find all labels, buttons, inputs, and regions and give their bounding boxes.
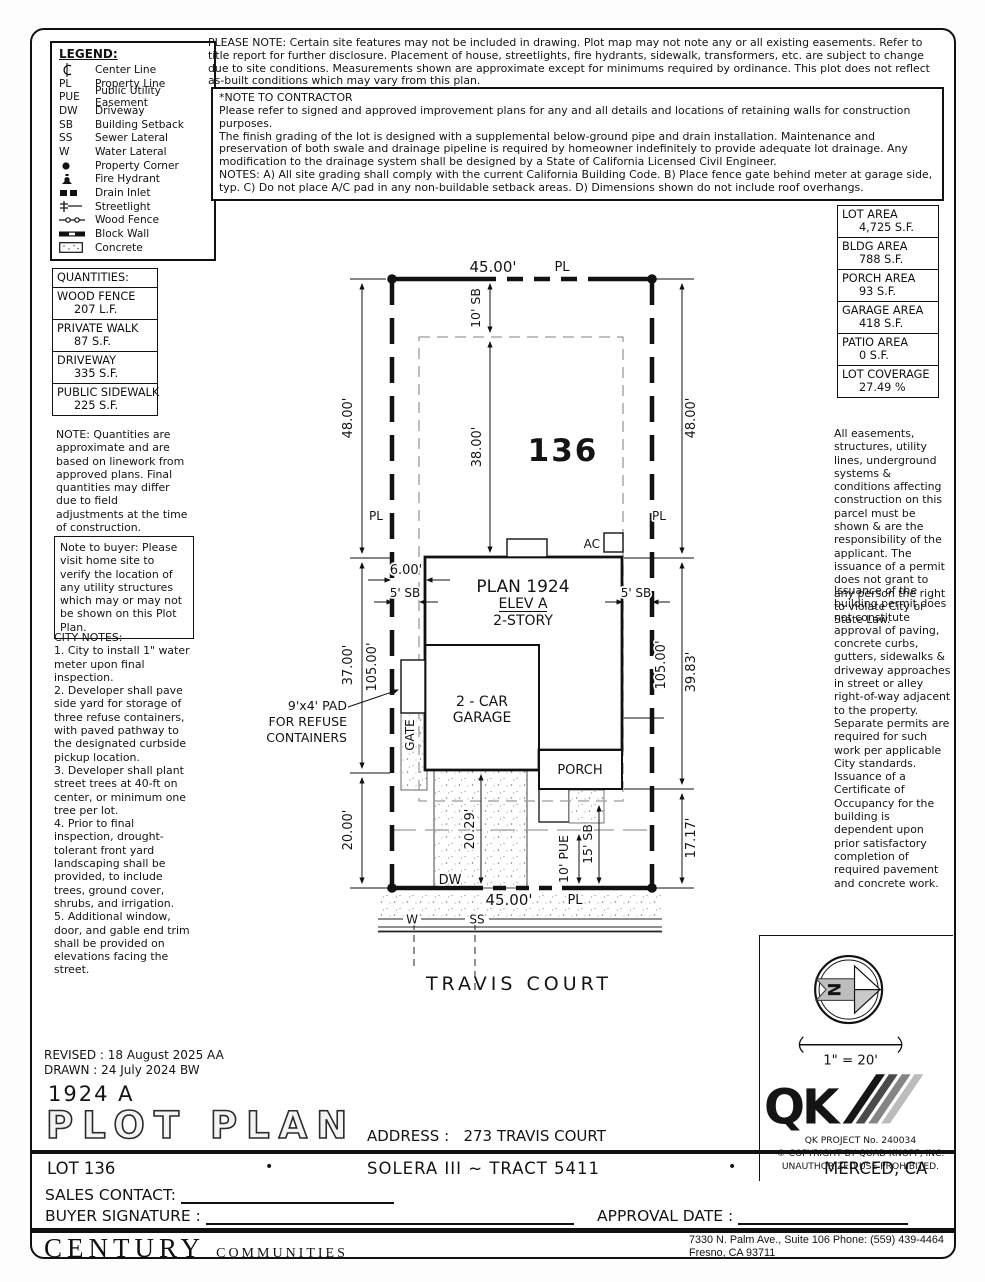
- refuse-pad: [401, 660, 425, 713]
- qk-logo: QK: [764, 1074, 924, 1135]
- dim-10-pue: 10' PUE: [556, 835, 571, 883]
- quantities-note: NOTE: Quantities are approximate and are…: [56, 428, 188, 534]
- buyer-signature-label: BUYER SIGNATURE :: [45, 1207, 201, 1225]
- pl-label-top: PL: [554, 260, 570, 275]
- sales-contact-line: [181, 1188, 394, 1204]
- plot-plan-sheet: LEGEND: Center Line PL Property Line PUE…: [0, 0, 985, 1282]
- gate-label: GATE: [403, 719, 417, 751]
- rear-stoop: [507, 539, 547, 557]
- quantities-row: WOOD FENCE 207 L.F.: [53, 287, 157, 319]
- refuse-pad-label-3: CONTAINERS: [266, 730, 347, 745]
- area-row: GARAGE AREA418 S.F.: [838, 301, 938, 333]
- area-row: PATIO AREA0 S.F.: [838, 333, 938, 365]
- garage-label-2: GARAGE: [453, 710, 512, 726]
- dim-45-bottom: 45.00': [485, 891, 532, 909]
- porch-label: PORCH: [557, 763, 602, 778]
- bullet-1: •: [265, 1159, 273, 1175]
- sales-contact-row: SALES CONTACT:: [45, 1186, 394, 1204]
- wood-fence-icon: [57, 215, 95, 225]
- garage-label-1: 2 - CAR: [456, 694, 508, 710]
- builder-row: CENTURY COMMUNITIES 7330 N. Palm Ave., S…: [44, 1233, 942, 1255]
- qk-logo-text: QK: [764, 1079, 841, 1135]
- city-notes: CITY NOTES: 1. City to install 1" water …: [54, 631, 196, 977]
- block-wall-icon: [57, 229, 95, 239]
- sales-contact-label: SALES CONTACT:: [45, 1186, 176, 1204]
- area-row: PORCH AREA93 S.F.: [838, 269, 938, 301]
- north-arrow-icon: N: [815, 956, 882, 1023]
- quantities-row: DRIVEWAY 335 S.F.: [53, 351, 157, 383]
- quantities-table: QUANTITIES: WOOD FENCE 207 L.F. PRIVATE …: [52, 268, 158, 416]
- buyer-note-box: Note to buyer: Please visit home site to…: [54, 536, 194, 639]
- note-to-contractor-box: *NOTE TO CONTRACTOR Please refer to sign…: [211, 87, 944, 201]
- dim-48-right: 48.00': [684, 398, 699, 439]
- tract-label: SOLERA III ~ TRACT 5411: [367, 1159, 600, 1178]
- buyer-signature-row: BUYER SIGNATURE :: [45, 1207, 574, 1225]
- scale-bar: 1" = 20': [799, 1037, 901, 1069]
- stamp-box: N 1" = 20' QK QK PROJECT No. 240034 © CO…: [759, 935, 953, 1181]
- plan-code: 1924 A: [48, 1082, 134, 1106]
- fire-hydrant-icon: [57, 173, 95, 186]
- dim-10-sb: 10' SB: [468, 288, 483, 328]
- legend-item-fire-hydrant: Fire Hydrant: [57, 173, 209, 187]
- legend-item-label: Center Line: [95, 64, 209, 76]
- sb5-right: 5' SB: [621, 586, 652, 600]
- sheet-border: LEGEND: Center Line PL Property Line PUE…: [30, 28, 956, 1259]
- approval-date-label: APPROVAL DATE :: [597, 1207, 733, 1225]
- revision-date: REVISED : 18 August 2025 AA: [44, 1048, 224, 1062]
- area-row: LOT COVERAGE27.49 %: [838, 365, 938, 397]
- area-row: BLDG AREA788 S.F.: [838, 237, 938, 269]
- lot-label: LOT 136: [47, 1159, 115, 1178]
- concrete-icon: [57, 242, 95, 253]
- address-row: ADDRESS : 273 TRAVIS COURT: [367, 1127, 606, 1145]
- legend-item-block-wall: Block Wall: [57, 227, 209, 241]
- legend-item-center-line: Center Line: [57, 63, 209, 77]
- dim-20-29: 20.29': [463, 809, 478, 850]
- dim-37: 37.00': [341, 645, 356, 686]
- legend-item-driveway: DW Driveway: [57, 104, 209, 118]
- area-row: LOT AREA4,725 S.F.: [838, 206, 938, 237]
- stamp-project: QK PROJECT No. 240034: [805, 1136, 917, 1146]
- legend-item-pue: PUE Public Utility Easement: [57, 90, 209, 104]
- builder-name: CENTURY: [44, 1233, 205, 1263]
- refuse-pad-label-2: FOR REFUSE: [269, 714, 348, 729]
- legend-title: LEGEND:: [59, 47, 209, 61]
- area-summary-table: LOT AREA4,725 S.F. BLDG AREA788 S.F. POR…: [837, 205, 939, 398]
- address-label: ADDRESS :: [367, 1127, 449, 1145]
- compass-and-scale: N 1" = 20' QK QK PROJECT No. 240034 © CO…: [760, 936, 953, 1181]
- legend-item-water: W Water Lateral: [57, 145, 209, 159]
- legend-box: LEGEND: Center Line PL Property Line PUE…: [50, 41, 216, 261]
- legend-item-wood-fence: Wood Fence: [57, 214, 209, 228]
- dim-20: 20.00': [341, 810, 356, 851]
- builder-address-2: Fresno, CA 93711: [689, 1247, 775, 1259]
- sheet-title: PLOT PLAN: [46, 1104, 356, 1147]
- plan-story: 2-STORY: [493, 613, 553, 629]
- legend-item-property-corner: Property Corner: [57, 159, 209, 173]
- dim-45-top: 45.00': [469, 258, 516, 276]
- ac-label: AC: [584, 537, 600, 551]
- legend-item-drain-inlet: Drain Inlet: [57, 186, 209, 200]
- property-line-symbol: PL: [57, 78, 95, 90]
- dim-105-left: 105.00': [365, 642, 380, 691]
- pl-label-right: PL: [652, 509, 666, 523]
- porch-step: [539, 789, 569, 822]
- legend-item-setback: SB Building Setback: [57, 118, 209, 132]
- site-plan-drawing: 45.00' PL 136 PLAN 1924 ELEV A 2-STORY A…: [252, 252, 722, 1022]
- buyer-signature-line: [206, 1209, 574, 1225]
- bullet-2: •: [728, 1159, 736, 1175]
- plan-elev: ELEV A: [498, 596, 548, 612]
- plan-name: PLAN 1924: [476, 577, 569, 597]
- pl-label-bottom: PL: [567, 893, 583, 908]
- dim-15-sb: 15' SB: [580, 824, 595, 864]
- streetlight-icon: [57, 200, 95, 213]
- dim-17-17: 17.17': [684, 818, 699, 859]
- quantities-title: QUANTITIES:: [53, 269, 157, 287]
- center-line-icon: [57, 63, 95, 77]
- dim-48-left: 48.00': [341, 398, 356, 439]
- dim-6: 6.00': [390, 563, 423, 578]
- dim-105-right: 105.00': [654, 640, 669, 689]
- legend-item-streetlight: Streetlight: [57, 200, 209, 214]
- drawn-date: DRAWN : 24 July 2024 BW: [44, 1063, 200, 1077]
- refuse-pad-label-1: 9'x4' PAD: [288, 698, 347, 713]
- address-value: 273 TRAVIS COURT: [463, 1127, 605, 1145]
- easement-note-2: Issuance of the building permit does not…: [834, 584, 952, 890]
- property-corner-icon: [57, 160, 95, 172]
- sewer-lateral-label: SS: [469, 913, 484, 927]
- scale-label: 1" = 20': [823, 1053, 878, 1068]
- quantities-row: PRIVATE WALK 87 S.F.: [53, 319, 157, 351]
- approval-date-row: APPROVAL DATE :: [597, 1207, 908, 1225]
- please-note-text: PLEASE NOTE: Certain site features may n…: [208, 37, 944, 88]
- drain-inlet-icon: [57, 187, 95, 199]
- legend-item-sewer: SS Sewer Lateral: [57, 131, 209, 145]
- ac-pad: [604, 533, 623, 552]
- lot-number: 136: [528, 433, 599, 469]
- builder-address-1: 7330 N. Palm Ave., Suite 106 Phone: (559…: [689, 1234, 944, 1246]
- water-lateral-label: W: [406, 913, 418, 927]
- builder-suffix: COMMUNITIES: [216, 1246, 348, 1261]
- footer-rule-top: [32, 1150, 954, 1154]
- city-label: MERCED, CA: [824, 1159, 927, 1178]
- approval-date-line: [738, 1209, 908, 1225]
- dw-label: DW: [439, 873, 462, 888]
- dim-39-83: 39.83': [684, 652, 699, 693]
- street-name: TRAVIS COURT: [425, 973, 612, 995]
- street-lines: [378, 919, 662, 932]
- quantities-row: PUBLIC SIDEWALK 225 S.F.: [53, 383, 157, 415]
- sb5-left: 5' SB: [390, 586, 421, 600]
- dim-38: 38.00': [470, 427, 485, 468]
- pl-label-left: PL: [369, 509, 383, 523]
- legend-item-concrete: Concrete: [57, 241, 209, 255]
- north-letter: N: [824, 983, 844, 997]
